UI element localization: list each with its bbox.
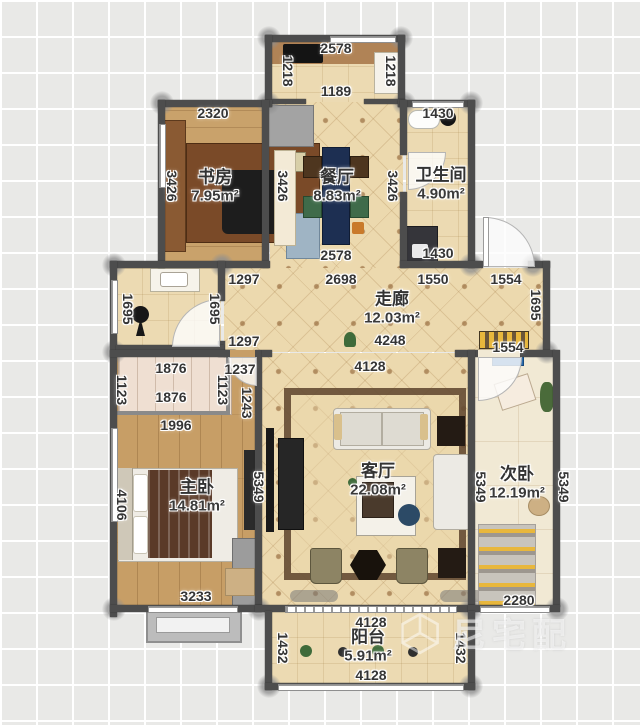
dim-label: 1297 [228, 333, 259, 349]
master-rug[interactable] [225, 568, 255, 596]
dim-label: 1695 [207, 293, 223, 324]
sofa-cushion [340, 412, 382, 446]
master-pillow [133, 516, 148, 554]
dim-label: 1432 [453, 632, 469, 663]
dim-label: 3426 [275, 170, 291, 201]
room-area: 12.03m² [364, 309, 420, 326]
room-label-study[interactable]: 书房 7.95m² [191, 168, 239, 205]
room-area: 12.19m² [489, 484, 545, 501]
room-area: 4.90m² [416, 185, 467, 202]
dim-label: 1695 [120, 293, 136, 324]
dim-label: 1430 [422, 105, 453, 121]
sofa-chaise[interactable] [433, 454, 471, 530]
room-name: 阳台 [344, 628, 392, 648]
room-area: 5.91m² [344, 647, 392, 664]
room-label-living[interactable]: 客厅 22.08m² [350, 462, 406, 499]
room-label-master[interactable]: 主卧 14.81m² [169, 478, 225, 515]
second-plant-icon[interactable] [540, 382, 554, 412]
room-name: 书房 [191, 168, 239, 188]
bay-window-inner [156, 617, 230, 633]
dim-label: 1554 [492, 339, 523, 355]
dim-label: 1123 [215, 375, 231, 405]
balcony-plant-icon[interactable] [408, 647, 418, 657]
window [111, 280, 118, 334]
balcony-slider[interactable] [285, 606, 457, 613]
dim-label: 1996 [160, 417, 191, 433]
balcony-plant-icon[interactable] [300, 645, 312, 657]
dim-label: 3426 [164, 170, 180, 201]
dim-label: 4248 [374, 332, 405, 348]
floorplan-canvas: { "rooms": { "study": {"name": "书房", "ar… [0, 0, 640, 725]
room-label-second[interactable]: 次卧 12.19m² [489, 465, 545, 502]
dim-label: 5349 [556, 471, 572, 502]
washroom-basin [160, 272, 188, 287]
dim-label: 2280 [503, 592, 534, 608]
dim-label: 1123 [114, 375, 130, 405]
sofa-pillow [334, 414, 342, 440]
dim-label: 1432 [275, 632, 291, 663]
armchair[interactable] [310, 548, 342, 584]
dim-label: 2578 [320, 40, 351, 56]
room-name: 走廊 [364, 290, 420, 310]
room-area: 7.95m² [191, 187, 239, 204]
room-name: 餐厅 [313, 168, 361, 188]
room-area: 22.08m² [350, 481, 406, 498]
dim-label: 1876 [155, 389, 186, 405]
dim-label: 1695 [528, 289, 544, 320]
dim-label: 4128 [355, 614, 386, 630]
room-name: 卫生间 [416, 166, 467, 186]
dim-label: 5349 [473, 471, 489, 502]
room-label-bath[interactable]: 卫生间 4.90m² [416, 166, 467, 203]
dining-decor[interactable] [352, 222, 364, 234]
dim-label: 5349 [251, 471, 267, 502]
dim-label: 4106 [114, 489, 130, 520]
sofa-pillow [420, 414, 428, 440]
side-table-dark[interactable] [438, 548, 466, 578]
floor-plant-row [290, 590, 338, 602]
corridor-plant-icon[interactable] [344, 332, 356, 347]
room-area: 8.83m² [313, 187, 361, 204]
master-pillow [133, 474, 148, 512]
sofa-cushion [382, 412, 424, 446]
dim-label: 1554 [490, 271, 521, 287]
dim-label: 2698 [325, 271, 356, 287]
room-label-dining[interactable]: 餐厅 8.83m² [313, 168, 361, 205]
room-name: 主卧 [169, 478, 225, 498]
dim-label: 1218 [280, 55, 296, 86]
room-label-corridor[interactable]: 走廊 12.03m² [364, 290, 420, 327]
dim-label: 1550 [417, 271, 448, 287]
dim-label: 1189 [321, 83, 351, 99]
dim-label: 1430 [422, 245, 453, 261]
dim-label: 3426 [385, 170, 401, 201]
dim-label: 1297 [228, 271, 259, 287]
dim-label: 1876 [155, 360, 186, 376]
dim-label: 1237 [224, 361, 255, 377]
entry-door-arc[interactable] [485, 217, 535, 267]
dim-label: 2320 [197, 105, 228, 121]
dim-label: 1218 [383, 55, 399, 86]
dim-label: 1243 [239, 387, 255, 418]
room-name: 客厅 [350, 462, 406, 482]
tv-cabinet[interactable] [278, 438, 304, 530]
armchair[interactable] [396, 548, 428, 584]
dim-label: 4128 [354, 358, 385, 374]
round-stool-blue[interactable] [398, 504, 420, 526]
dim-label: 4128 [355, 667, 386, 683]
window [148, 606, 238, 613]
window [278, 684, 464, 691]
dim-label: 2578 [320, 247, 351, 263]
entry-door-leaf [483, 217, 489, 267]
side-table-dark[interactable] [437, 416, 465, 446]
room-name: 次卧 [489, 465, 545, 485]
room-label-balcony[interactable]: 阳台 5.91m² [344, 628, 392, 665]
dim-label: 3233 [180, 588, 211, 604]
tv-panel[interactable] [266, 428, 274, 532]
room-area: 14.81m² [169, 497, 225, 514]
